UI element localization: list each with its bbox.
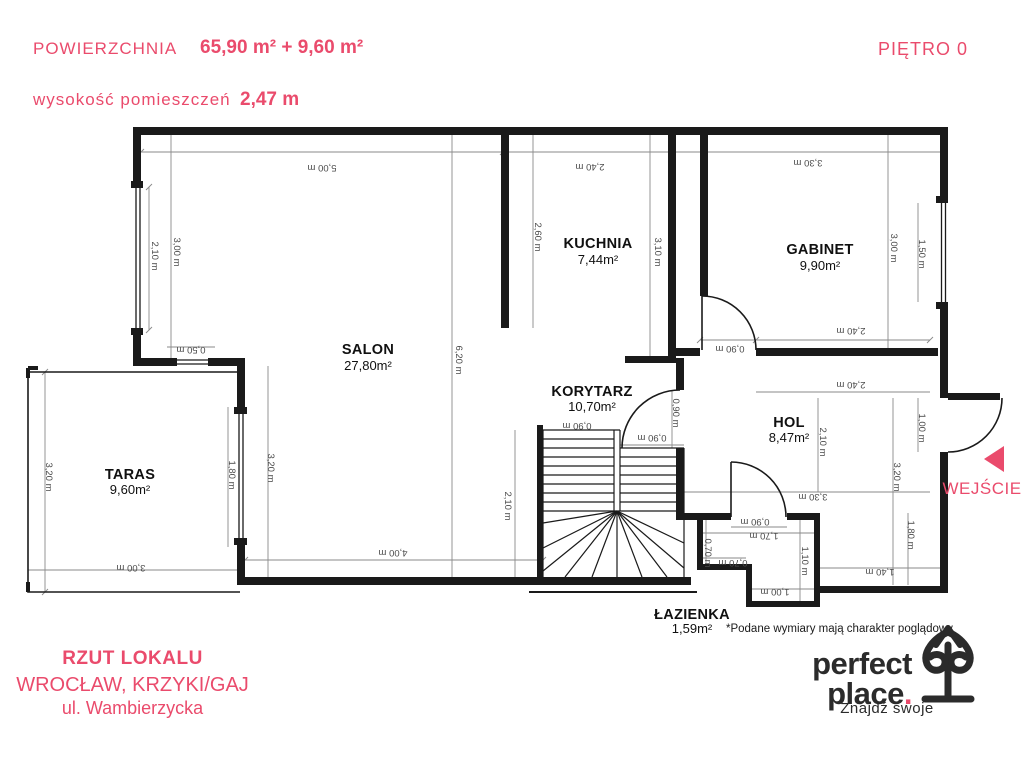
dimension-label: 3,10 m — [652, 237, 663, 266]
room-area-lazienka: 1,59m² — [672, 621, 713, 636]
dimension-label: 2,10 m — [149, 241, 160, 270]
floor-plan-page: POWIERZCHNIA 65,90 m² + 9,60 m² wysokość… — [0, 0, 1024, 763]
entrance-door-arc — [948, 398, 1002, 452]
room-area-taras: 9,60m² — [110, 482, 151, 497]
floor-plan-drawing: WEJŚCIE SALON 27,80m² KUCHNIA 7,44m² GAB… — [0, 0, 1024, 763]
room-area-gabinet: 9,90m² — [800, 258, 841, 273]
logo-tree-icon — [925, 628, 971, 699]
dimension-label: 1,00 m — [916, 413, 927, 442]
dimension-label: 0,70 m — [718, 557, 747, 568]
dimension-label: 3,20 m — [43, 462, 54, 491]
dimension-label: 3,20 m — [891, 462, 902, 491]
dimension-label: 3,00 m — [888, 233, 899, 262]
room-name-korytarz: KORYTARZ — [551, 384, 632, 400]
room-name-taras: TARAS — [105, 467, 155, 483]
dimension-label: 0,90 m — [637, 432, 666, 443]
dimension-label: 6,20 m — [453, 345, 464, 374]
dimension-label: 1,10 m — [799, 546, 810, 575]
dimension-label: 2,40 m — [836, 379, 865, 390]
dimension-label: 0,90 m — [670, 398, 681, 427]
dimension-label: 3,30 m — [798, 491, 827, 502]
stairs — [529, 430, 697, 592]
dimension-label: 1,80 m — [905, 520, 916, 549]
dimension-label: 0,90 m — [562, 420, 591, 431]
dimension-label: 1,70 m — [749, 530, 778, 541]
room-name-salon: SALON — [342, 342, 394, 358]
room-labels: SALON 27,80m² KUCHNIA 7,44m² GABINET 9,9… — [105, 236, 854, 636]
room-area-korytarz: 10,70m² — [568, 399, 616, 414]
room-name-gabinet: GABINET — [786, 242, 853, 258]
dimension-label: 3,20 m — [265, 453, 276, 482]
dimension-label: 0,50 m — [176, 344, 205, 355]
dimension-label: 1,80 m — [226, 460, 237, 489]
dimension-label: 1,00 m — [760, 586, 789, 597]
dimension-label: 3,00 m — [171, 237, 182, 266]
dimension-label: 0,70 m — [702, 538, 713, 567]
room-name-kuchnia: KUCHNIA — [564, 236, 633, 252]
room-area-kuchnia: 7,44m² — [578, 252, 619, 267]
dimension-label: 5,00 m — [307, 162, 336, 173]
entrance-label: WEJŚCIE — [942, 479, 1021, 498]
dimension-label: 2,40 m — [836, 325, 865, 336]
dimension-label: 2,10 m — [502, 491, 513, 520]
room-area-hol: 8,47m² — [769, 430, 810, 445]
disclaimer-note: *Podane wymiary mają charakter poglądowy — [726, 623, 953, 635]
dimension-label: 2,10 m — [817, 427, 828, 456]
dimension-label: 1,40 m — [865, 566, 894, 577]
gabinet-door-arc — [702, 296, 756, 350]
dimension-label: 3,30 m — [793, 157, 822, 168]
walls — [131, 127, 1000, 607]
dimension-label: 2,60 m — [532, 222, 543, 251]
dimension-label: 0,90 m — [740, 516, 769, 527]
dimension-label: 1,50 m — [916, 239, 927, 268]
dimension-label: 2,40 m — [575, 161, 604, 172]
dimension-labels: 5,00 m 2,40 m 3,30 m 2,10 m 3,00 m 0,50 … — [43, 157, 927, 597]
room-name-hol: HOL — [773, 415, 805, 431]
entrance-arrow-icon — [984, 446, 1004, 472]
dimension-lines — [28, 135, 947, 601]
room-area-salon: 27,80m² — [344, 358, 392, 373]
dimension-label: 0,90 m — [715, 343, 744, 354]
dimension-label: 3,00 m — [116, 562, 145, 573]
bathroom-door-arc — [731, 462, 786, 517]
dimension-label: 4,00 m — [378, 547, 407, 558]
